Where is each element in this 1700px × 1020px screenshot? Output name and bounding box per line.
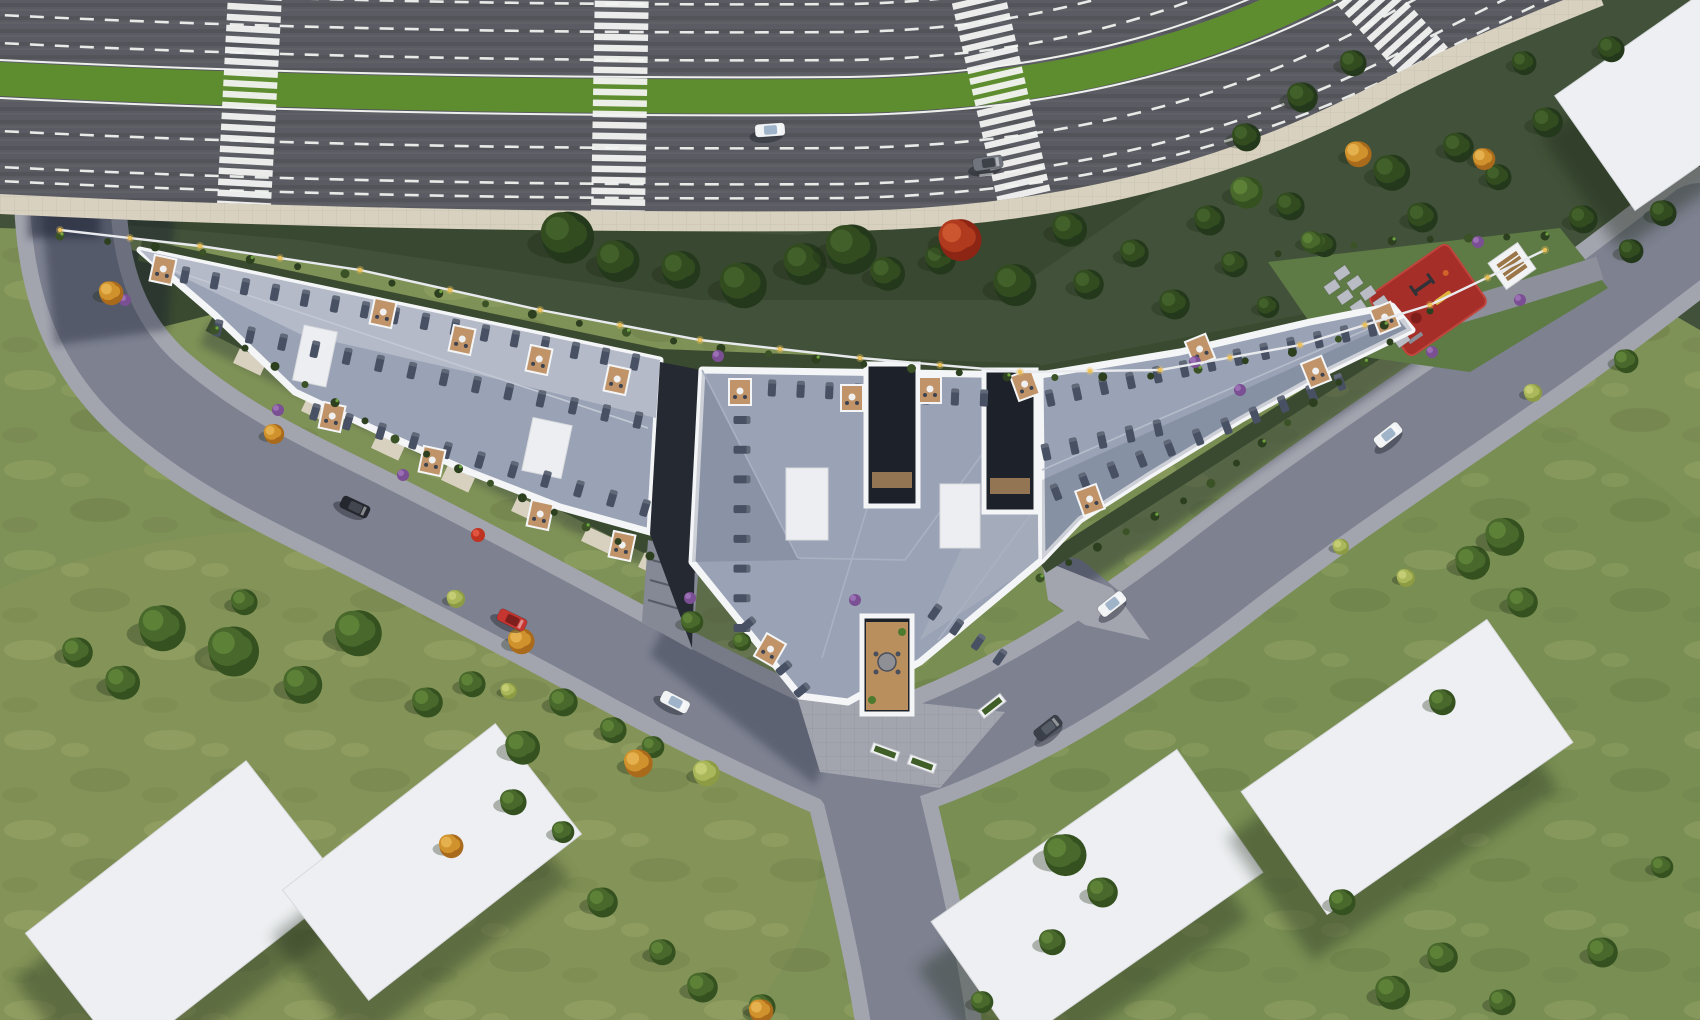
hedge-bush: [1150, 512, 1159, 521]
sunbed-pillow: [951, 388, 959, 392]
sunbed: [734, 565, 751, 573]
balcony-chair: [855, 401, 859, 405]
hedge-highlight: [1040, 574, 1043, 577]
hedge-bush: [860, 361, 867, 368]
sunbed-pillow: [768, 379, 776, 383]
hedge-bush: [907, 364, 916, 373]
bottom-courtyard: [862, 616, 912, 714]
hedge-bush: [302, 381, 309, 388]
tree-highlight: [942, 223, 961, 242]
hedge-bush: [340, 269, 349, 278]
chair: [874, 652, 879, 657]
purple-bush-highlight: [1190, 357, 1196, 363]
tree-highlight: [1162, 293, 1176, 307]
fence-light: [198, 244, 202, 248]
hedge-bush: [1288, 348, 1297, 357]
tree-highlight: [1616, 352, 1627, 363]
lightwell-deck-1: [872, 472, 912, 488]
hedge-bush: [331, 398, 340, 407]
red-bush-highlight: [473, 530, 480, 537]
tree-highlight: [690, 976, 704, 990]
sunbed: [796, 381, 805, 398]
balcony: [419, 446, 446, 476]
tree-highlight: [751, 1002, 762, 1013]
hedge-bush: [388, 280, 395, 287]
hedge-bush: [242, 345, 249, 352]
hedge-bush: [1051, 374, 1058, 381]
tree-highlight: [1491, 992, 1503, 1004]
tree-highlight: [266, 426, 275, 435]
tree-highlight: [1259, 298, 1269, 308]
hedge-bush: [1284, 419, 1291, 426]
hedge-bush: [1242, 357, 1249, 364]
hedge-highlight: [1365, 359, 1368, 362]
hedge-highlight: [1392, 237, 1395, 240]
hedge-highlight: [587, 523, 590, 526]
tree-highlight: [1446, 136, 1460, 150]
purple-bush-highlight: [1235, 385, 1241, 391]
tree-highlight: [552, 691, 565, 704]
hedge-bush: [1335, 336, 1342, 343]
fence-light: [58, 228, 62, 232]
chair: [896, 670, 901, 675]
tree-highlight: [1047, 838, 1066, 857]
purple-bush-highlight: [398, 470, 404, 476]
hedge-bush: [1098, 372, 1107, 381]
tree-highlight: [1279, 195, 1292, 208]
hedge-bush: [1380, 321, 1389, 330]
tree-highlight: [1378, 979, 1393, 994]
fence-light: [618, 323, 622, 327]
sunbed: [734, 505, 751, 513]
chair: [874, 670, 879, 675]
sunbed-pillow: [747, 446, 751, 454]
tree-highlight: [602, 720, 614, 732]
tree-highlight: [1653, 858, 1663, 868]
purple-bush-highlight: [273, 405, 279, 411]
tree-highlight: [1090, 881, 1104, 895]
tree-highlight: [973, 993, 983, 1003]
hedge-bush: [576, 320, 583, 327]
hedge-bush: [1351, 242, 1358, 249]
balcony-chair: [845, 401, 849, 405]
tree-highlight: [233, 592, 245, 604]
tree-highlight: [724, 267, 745, 288]
balcony: [449, 325, 476, 355]
tree-highlight: [1590, 941, 1604, 955]
hedge-bush: [518, 493, 527, 502]
fence-light: [538, 308, 542, 312]
aerial-render: [0, 0, 1700, 1020]
tree-highlight: [1621, 242, 1632, 253]
chair: [896, 652, 901, 657]
sunbed-pillow: [747, 475, 751, 483]
fence-light: [1088, 369, 1092, 373]
tree-highlight: [1377, 158, 1393, 174]
lightwell-deck-2: [990, 478, 1030, 494]
balcony: [526, 345, 553, 375]
tree-highlight: [1235, 126, 1248, 139]
scene-svg: [0, 0, 1700, 1020]
sunbed: [734, 535, 751, 543]
tree-highlight: [546, 217, 569, 240]
hedge-bush: [670, 338, 677, 345]
tree-highlight: [502, 792, 514, 804]
hedge-highlight: [215, 326, 218, 329]
hedge-bush: [434, 289, 443, 298]
tree-highlight: [665, 255, 682, 272]
sunbed: [980, 389, 989, 406]
hedge-highlight: [251, 256, 254, 259]
tree-highlight: [683, 613, 693, 623]
balcony-table: [927, 386, 934, 393]
hedge-bush: [362, 417, 369, 424]
sunbed-pillow: [747, 505, 751, 513]
fence-light: [1298, 343, 1302, 347]
hedge-bush: [765, 350, 772, 357]
hedge-bush: [956, 369, 963, 376]
hedge-bush: [622, 328, 631, 337]
hedge-bush: [454, 464, 463, 473]
hedge-bush: [487, 480, 494, 487]
tree-highlight: [1342, 53, 1354, 65]
tree-highlight: [502, 684, 509, 691]
tree-highlight: [461, 674, 473, 686]
hedge-bush: [528, 310, 537, 319]
sunbed-pillow: [747, 535, 751, 543]
tree-highlight: [441, 837, 452, 848]
hedge-bush: [582, 522, 591, 531]
fence-light: [778, 347, 782, 351]
hedge-bush: [1335, 379, 1342, 386]
hedge-highlight: [1155, 513, 1158, 516]
hedge-bush: [391, 434, 400, 443]
tree-highlight: [448, 592, 456, 600]
hedge-bush: [1388, 236, 1397, 245]
fence-light: [448, 288, 452, 292]
tree-highlight: [590, 891, 604, 905]
hedge-bush: [246, 255, 255, 264]
tree-highlight: [1489, 522, 1506, 539]
hedge-highlight: [459, 465, 462, 468]
hedge-bush: [1464, 234, 1473, 243]
sunbed-pillow: [747, 416, 751, 424]
tree-highlight: [1431, 692, 1443, 704]
hedge-highlight: [1262, 439, 1265, 442]
tree-highlight: [997, 268, 1016, 287]
tree-highlight: [830, 230, 853, 253]
balcony: [841, 385, 863, 411]
tree-highlight: [1535, 111, 1549, 125]
sunbed: [951, 388, 960, 405]
courtyard-table: [878, 653, 896, 671]
hedge-bush: [1093, 543, 1102, 552]
balcony: [729, 379, 751, 405]
hedge-bush: [1275, 250, 1282, 257]
fence-light: [1018, 370, 1022, 374]
hedge-bush: [211, 326, 220, 335]
hedge-bush: [1541, 232, 1550, 241]
tree-highlight: [695, 763, 707, 775]
car-cabin: [764, 125, 778, 135]
tree-highlight: [1475, 150, 1485, 160]
tree-highlight: [1041, 932, 1053, 944]
tree-highlight: [1197, 209, 1211, 223]
sunbed: [768, 379, 777, 396]
tree-highlight: [143, 610, 164, 631]
tree-highlight: [287, 670, 304, 687]
hedge-highlight: [335, 399, 338, 402]
fence-light: [938, 363, 942, 367]
tree-highlight: [1458, 549, 1473, 564]
balcony: [150, 255, 177, 285]
balcony: [370, 298, 397, 328]
hedge-bush: [1123, 528, 1130, 535]
tree-highlight: [1076, 273, 1090, 287]
hedge-highlight: [1385, 321, 1388, 324]
hedge-bush: [1206, 479, 1215, 488]
balcony: [609, 531, 636, 561]
hedge-bush: [104, 238, 111, 245]
car-cabin: [981, 158, 995, 169]
tree-highlight: [1223, 254, 1235, 266]
purple-bush-highlight: [1515, 295, 1521, 301]
tree-highlight: [873, 260, 888, 275]
car-windshield: [778, 125, 782, 134]
tree-highlight: [1430, 946, 1444, 960]
sunbed-pillow: [826, 382, 834, 386]
courtyard-plant: [898, 628, 906, 636]
tree-highlight: [627, 752, 640, 765]
tree-highlight: [1514, 54, 1525, 65]
hedge-bush: [1036, 574, 1045, 583]
tree-highlight: [415, 691, 429, 705]
balcony: [319, 402, 346, 432]
balcony-table: [737, 388, 744, 395]
hedge-highlight: [817, 355, 820, 358]
hedge-bush: [423, 451, 430, 458]
fence-light: [698, 338, 702, 342]
tree-highlight: [101, 284, 112, 295]
balcony-chair: [743, 395, 747, 399]
tree-highlight: [339, 615, 360, 636]
hedge-bush: [1387, 339, 1394, 346]
purple-bush-highlight: [713, 351, 719, 357]
hedge-bush: [482, 300, 489, 307]
sunbed-pillow: [747, 565, 751, 573]
tree-highlight: [554, 823, 564, 833]
hedge-highlight: [1007, 373, 1010, 376]
balcony: [604, 365, 631, 395]
sunbed-pillow: [797, 381, 805, 385]
tree-highlight: [1510, 591, 1524, 605]
fence-light: [1228, 355, 1232, 359]
tree-highlight: [108, 669, 123, 684]
balcony-chair: [733, 395, 737, 399]
fence-light: [1428, 303, 1432, 307]
tree-highlight: [734, 635, 742, 643]
tree-highlight: [1398, 571, 1406, 579]
tree-highlight: [508, 734, 523, 749]
fence-light: [278, 256, 282, 260]
sunbed-pillow: [980, 389, 988, 393]
hedge-bush: [1360, 358, 1369, 367]
tree-highlight: [1525, 386, 1533, 394]
tree-highlight: [1600, 39, 1612, 51]
hedge-bush: [1309, 398, 1318, 407]
hedge-bush: [1180, 497, 1187, 504]
balcony-chair: [933, 393, 937, 397]
purple-bush-highlight: [685, 593, 691, 599]
purple-bush-highlight: [1427, 347, 1433, 353]
hedge-bush: [615, 538, 622, 545]
hedge-bush: [271, 362, 280, 371]
sunbed: [734, 416, 751, 424]
balcony: [527, 500, 554, 530]
sunbed: [734, 446, 751, 454]
tree-highlight: [787, 247, 806, 266]
hedge-bush: [812, 355, 821, 364]
tree-highlight: [644, 738, 654, 748]
hedge-bush: [1147, 373, 1154, 380]
tree-highlight: [1410, 206, 1424, 220]
tree-highlight: [1290, 86, 1304, 100]
tree-highlight: [651, 942, 663, 954]
hedge-bush: [1002, 372, 1011, 381]
hedge-bush: [1233, 460, 1240, 467]
fence-light: [1485, 275, 1489, 279]
fence-light: [358, 268, 362, 272]
hedge-bush: [151, 242, 160, 251]
courtyard-plant: [868, 696, 876, 704]
fence-light: [128, 236, 132, 240]
tree-highlight: [1233, 180, 1247, 194]
tree-highlight: [600, 244, 619, 263]
balcony-chair: [923, 393, 927, 397]
hedge-bush: [1258, 438, 1267, 447]
hedge-highlight: [1545, 232, 1548, 235]
hedge-bush: [1065, 559, 1072, 566]
hedge-bush: [551, 509, 558, 516]
crosswalk: [591, 0, 649, 215]
sunbed: [734, 475, 751, 483]
purple-bush-highlight: [850, 595, 856, 601]
hedge-bush: [1427, 236, 1434, 243]
roof-shaft: [786, 468, 828, 540]
tree-highlight: [1572, 208, 1585, 221]
balcony-table: [849, 394, 856, 401]
tree-highlight: [1055, 216, 1070, 231]
tree-highlight: [1303, 233, 1313, 243]
tree-highlight: [1334, 540, 1341, 547]
sunbed-pillow: [747, 594, 751, 602]
tree-highlight: [1347, 144, 1359, 156]
hedge-highlight: [439, 290, 442, 293]
roof-shaft: [940, 484, 980, 548]
sunbed: [734, 594, 751, 602]
purple-bush-highlight: [1473, 237, 1479, 243]
tree-highlight: [212, 632, 235, 655]
balcony: [919, 377, 941, 403]
hedge-highlight: [627, 329, 630, 332]
tree-highlight: [1652, 203, 1664, 215]
hedge-bush: [646, 552, 655, 561]
hedge-bush: [1503, 234, 1510, 241]
hedge-bush: [294, 263, 301, 270]
fence-light: [1543, 248, 1547, 252]
tree-highlight: [65, 641, 79, 655]
sunbed: [825, 382, 834, 399]
tree-highlight: [1123, 242, 1136, 255]
fence-light: [858, 356, 862, 360]
tree-highlight: [1331, 892, 1343, 904]
fence-light: [1363, 323, 1367, 327]
fence-light: [1158, 368, 1162, 372]
